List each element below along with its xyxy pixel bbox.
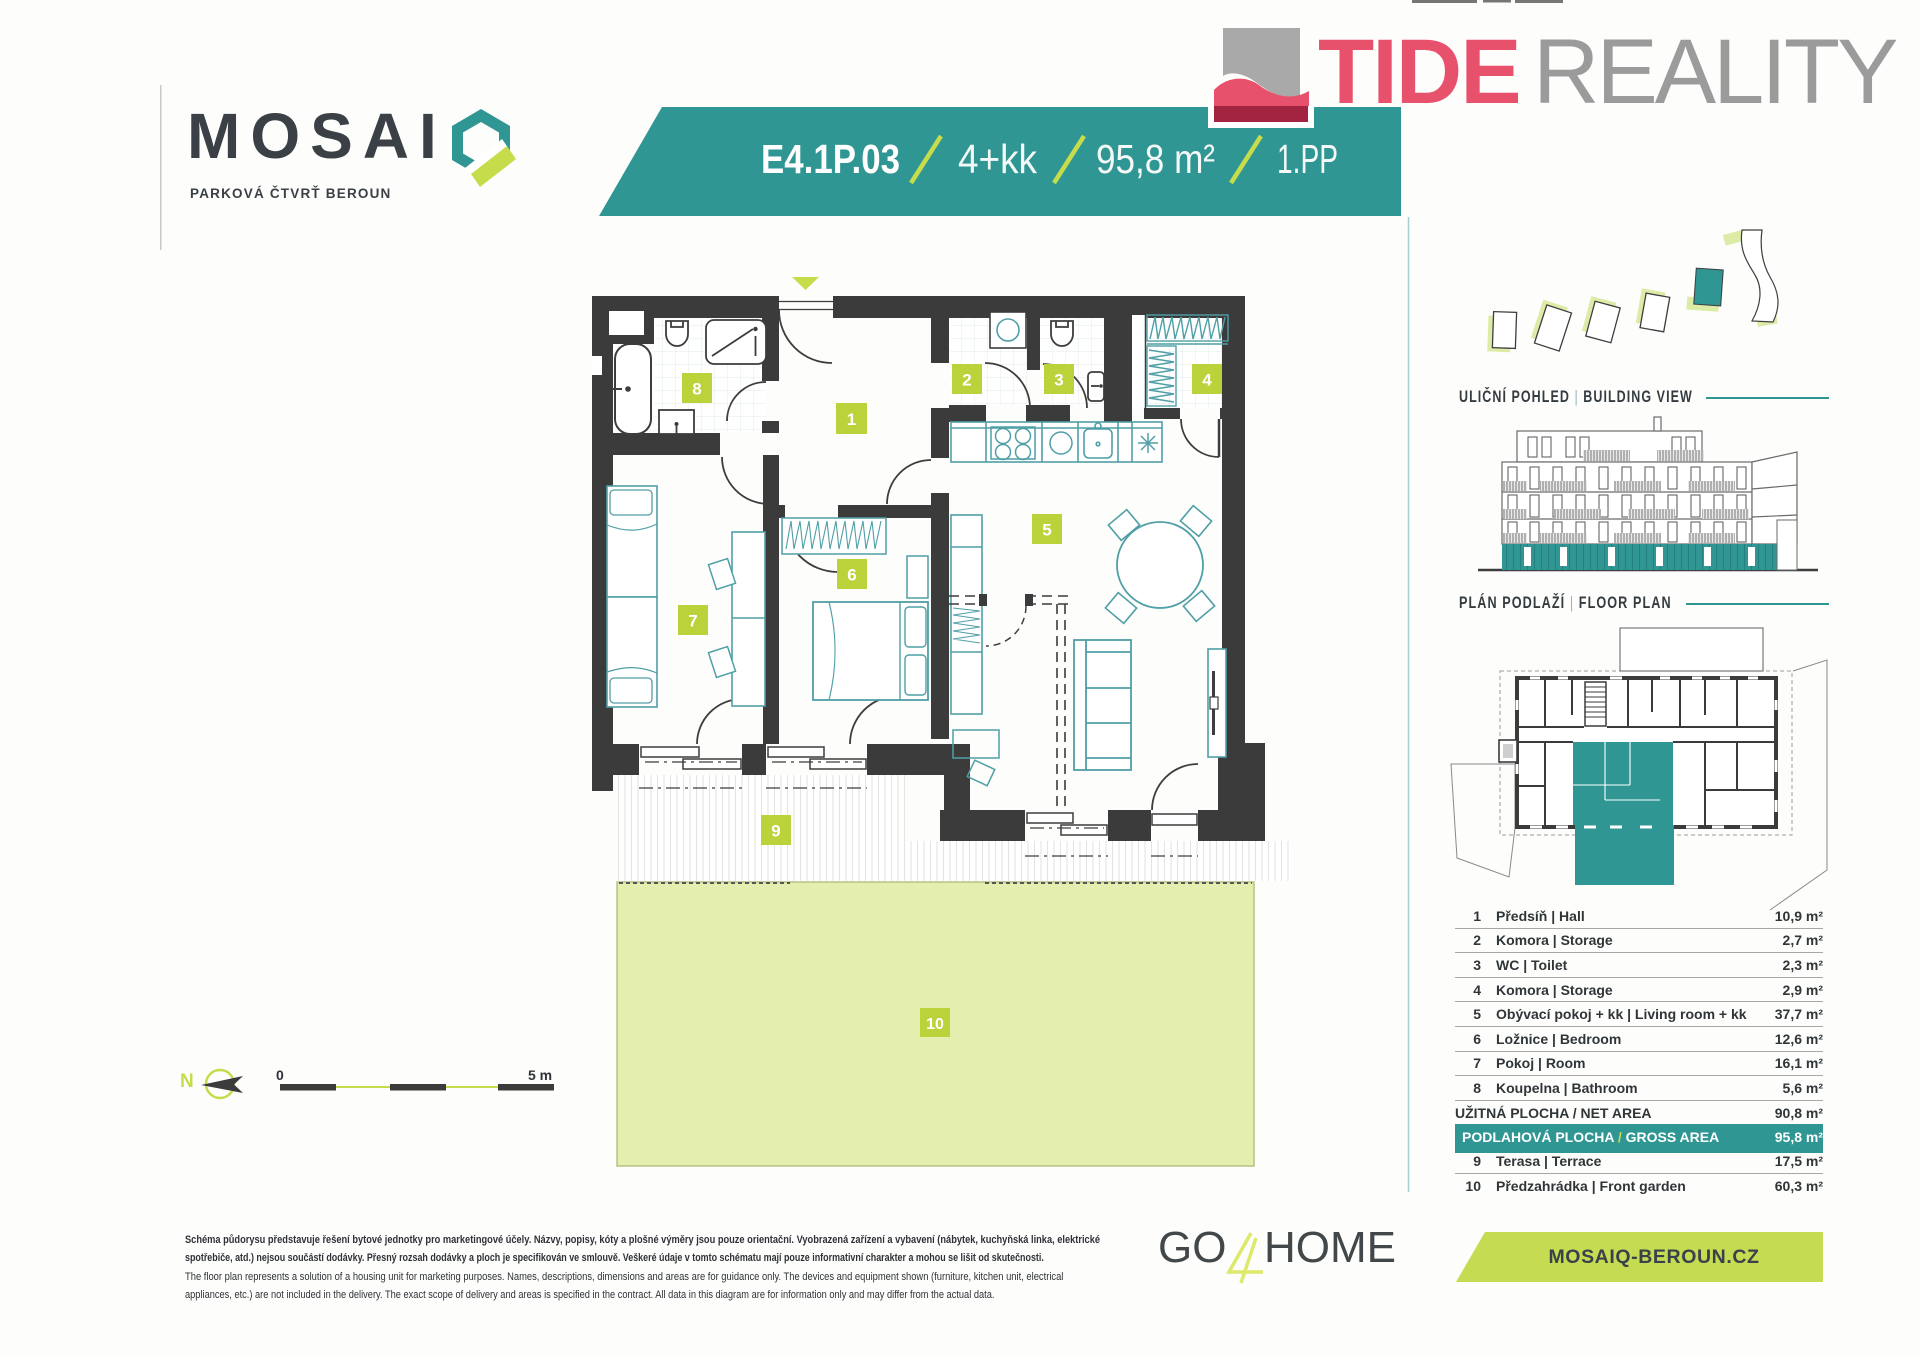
svg-text:4+kk: 4+kk — [958, 136, 1037, 182]
svg-text:4: 4 — [1202, 371, 1212, 390]
svg-text:1.PP: 1.PP — [1277, 136, 1338, 182]
svg-text:1: 1 — [847, 410, 856, 429]
svg-text:9: 9 — [771, 822, 780, 841]
svg-text:95,8 m²: 95,8 m² — [1096, 136, 1215, 182]
svg-text:10: 10 — [926, 1016, 944, 1033]
svg-text:5: 5 — [1042, 521, 1051, 540]
svg-text:7: 7 — [688, 612, 697, 631]
svg-text:3: 3 — [1054, 371, 1063, 390]
svg-text:6: 6 — [847, 566, 856, 585]
svg-text:E4.1P.03: E4.1P.03 — [761, 136, 900, 182]
svg-text:2: 2 — [962, 371, 971, 390]
svg-text:8: 8 — [692, 380, 701, 399]
